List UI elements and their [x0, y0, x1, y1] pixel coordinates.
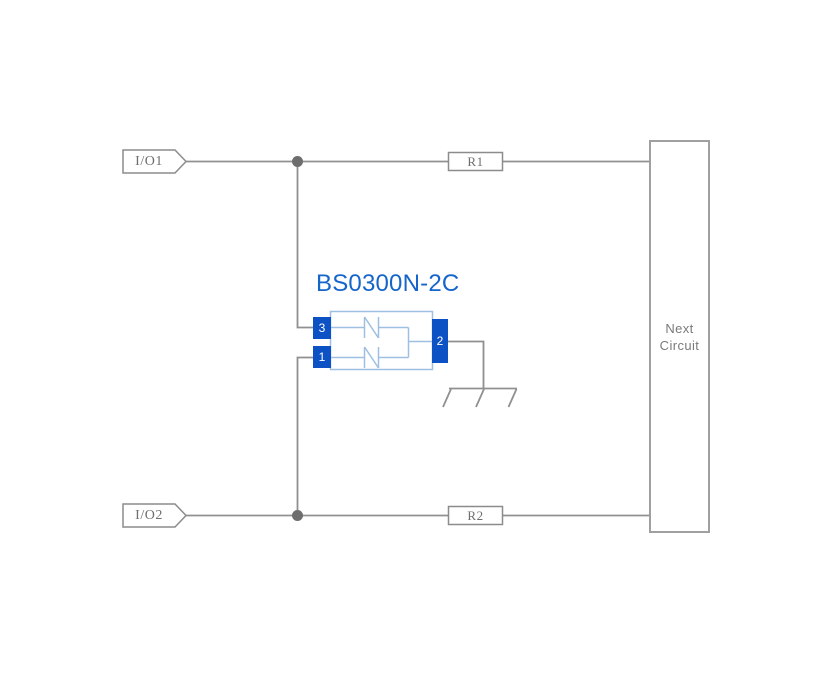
ground-hatch-left [443, 389, 451, 407]
wire-io1-branch [298, 162, 314, 328]
ground-symbol [443, 389, 517, 408]
junction-dot-bottom [292, 510, 303, 521]
component-title: BS0300N-2C [316, 270, 486, 298]
io2-connector-label: I/O2 [123, 504, 175, 527]
resistor-r1-label: R1 [448, 152, 503, 171]
component-pin-1: 1 [313, 346, 331, 368]
component-body-outline [331, 312, 433, 370]
resistor-r2-label: R2 [448, 506, 503, 525]
next-circuit-label: Next Circuit [650, 141, 709, 532]
io1-connector-label: I/O1 [123, 150, 175, 173]
ground-hatch-right [509, 389, 517, 407]
next-circuit-label-line1: Next [665, 320, 693, 337]
junction-dot-top [292, 156, 303, 167]
wire-pin2-to-ground [448, 342, 484, 389]
component-pin-3: 3 [313, 317, 331, 339]
next-circuit-label-line2: Circuit [660, 337, 700, 354]
wire-io2-branch [298, 358, 314, 516]
schematic-canvas: I/O1 I/O2 R1 R2 BS0300N-2C Next Circuit … [0, 0, 832, 675]
component-pin-2: 2 [432, 319, 448, 363]
ground-hatch-middle [476, 389, 484, 407]
